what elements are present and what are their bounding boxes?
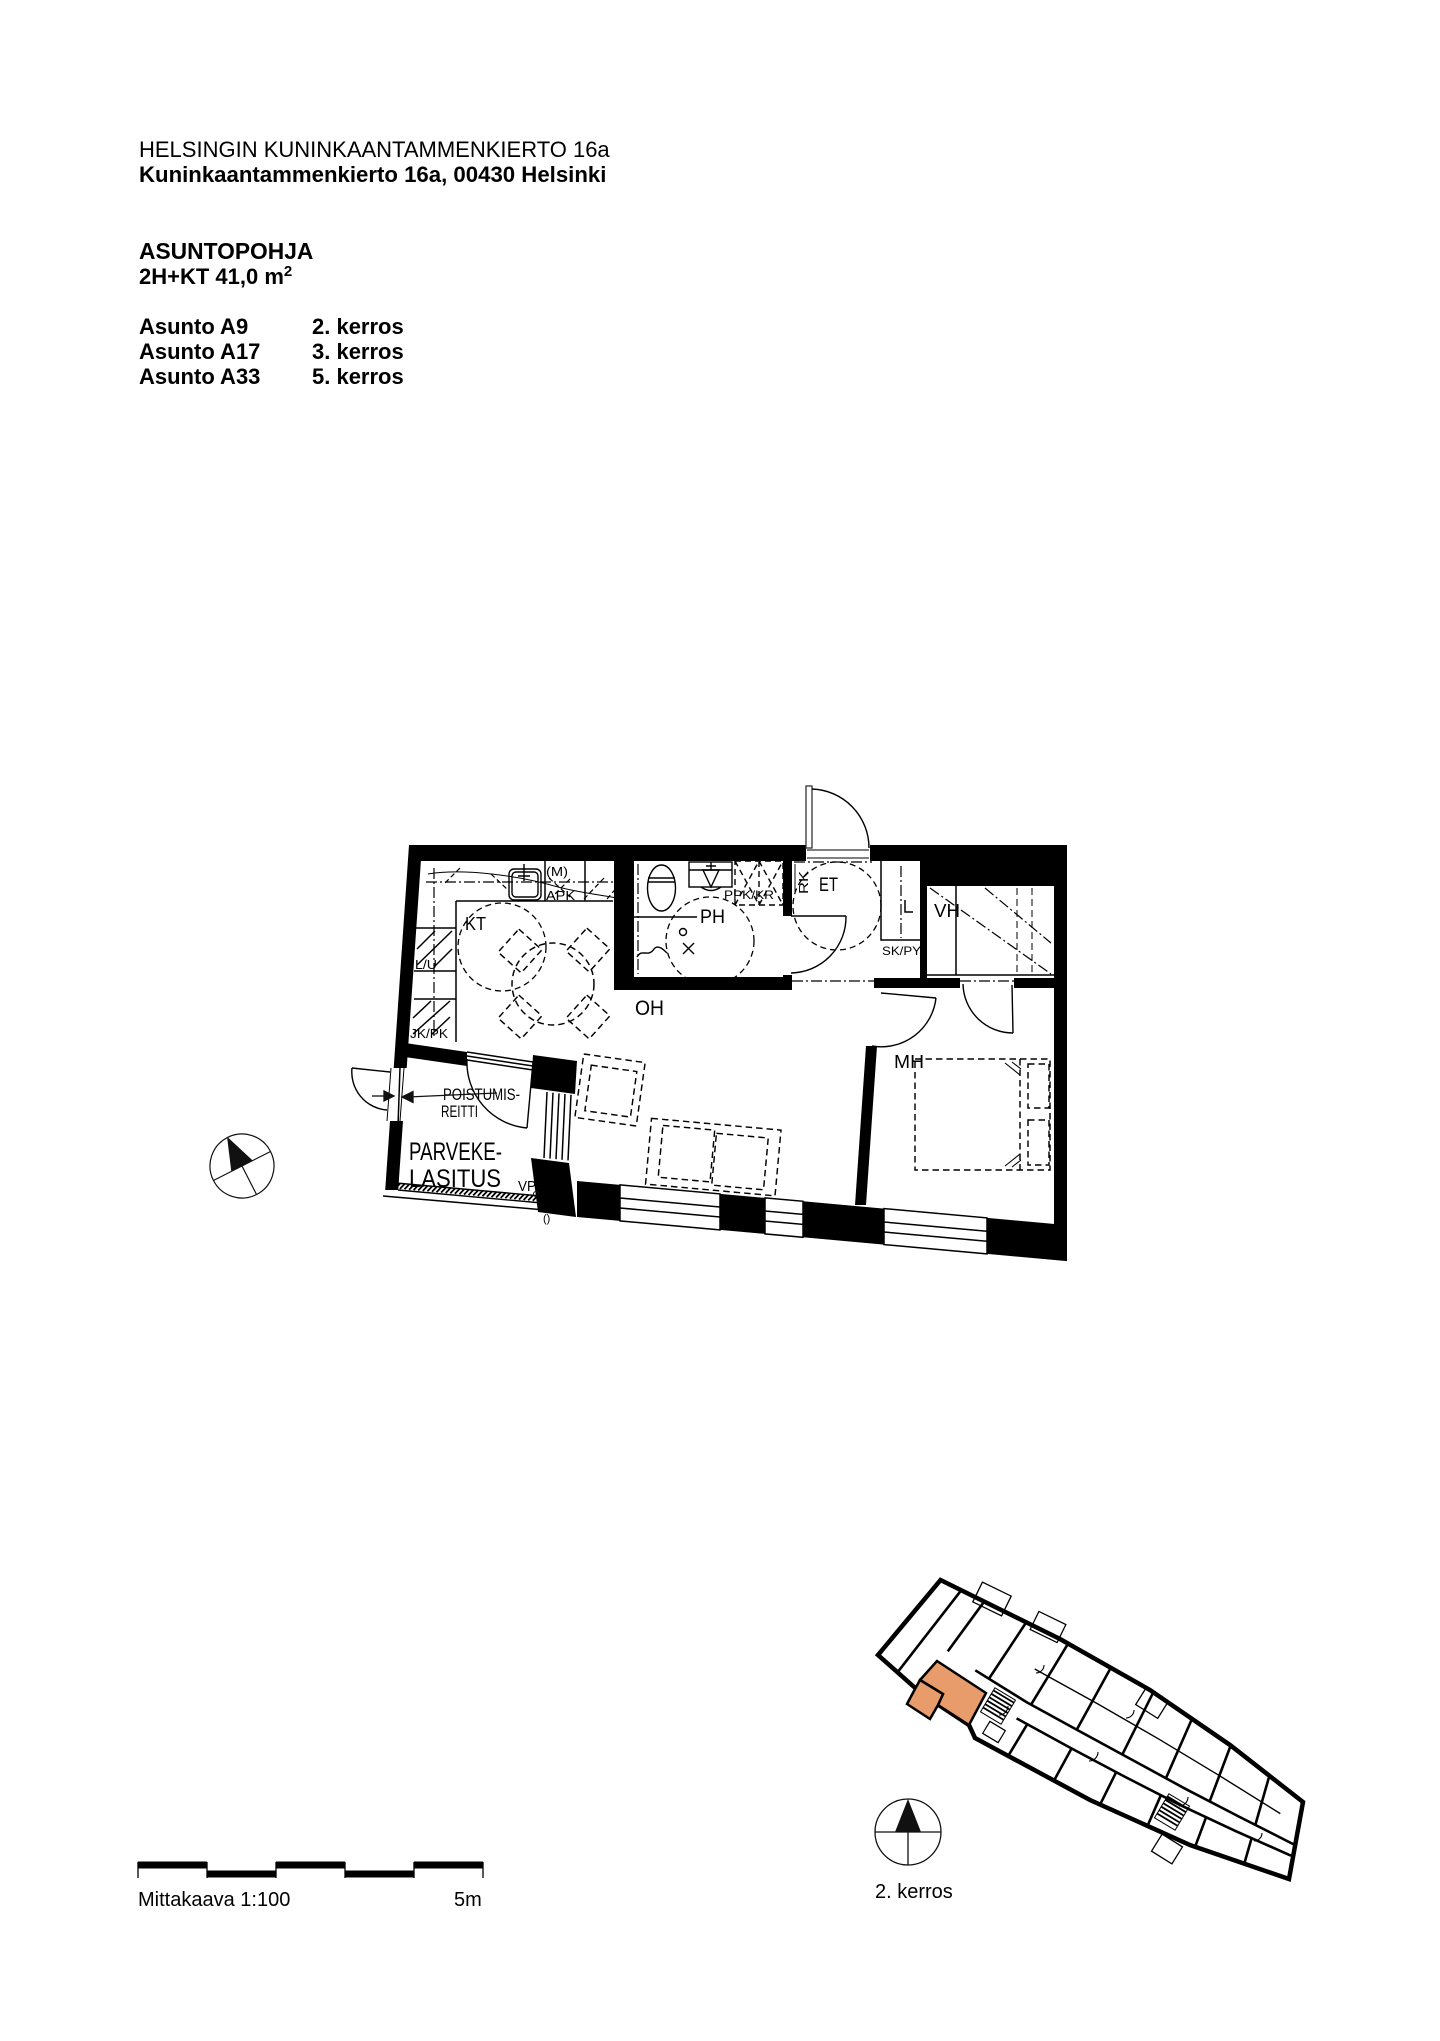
svg-text:(M): (M) (546, 865, 568, 879)
svg-text:LASITUS: LASITUS (409, 1165, 501, 1193)
svg-text:PARVEKE-: PARVEKE- (409, 1138, 502, 1166)
svg-text:5. kerros: 5. kerros (312, 364, 404, 389)
svg-text:PPK/KR: PPK/KR (724, 888, 774, 902)
svg-text:Asunto A33: Asunto A33 (139, 364, 260, 389)
svg-text:JK/PK: JK/PK (410, 1027, 449, 1041)
svg-text:OH: OH (635, 997, 664, 1020)
svg-text:2. kerros: 2. kerros (875, 1881, 953, 1903)
svg-text:ASUNTOPOHJA: ASUNTOPOHJA (139, 238, 313, 264)
svg-text:5m: 5m (454, 1889, 482, 1911)
svg-text:KT: KT (465, 914, 486, 934)
svg-text:L/U: L/U (415, 958, 437, 972)
svg-text:(): () (543, 1213, 550, 1225)
svg-text:3. kerros: 3. kerros (312, 339, 404, 364)
svg-text:Asunto A17: Asunto A17 (139, 339, 260, 364)
svg-text:SK/PY: SK/PY (882, 944, 921, 958)
svg-text:Kuninkaantammenkierto 16a, 004: Kuninkaantammenkierto 16a, 00430 Helsink… (139, 162, 606, 187)
svg-text:2H+KT 41,0 m2: 2H+KT 41,0 m2 (139, 263, 292, 289)
svg-text:REITTI: REITTI (441, 1103, 478, 1121)
svg-text:HELSINGIN KUNINKAANTAMMENKIERT: HELSINGIN KUNINKAANTAMMENKIERTO 16a (139, 137, 610, 162)
svg-text:2. kerros: 2. kerros (312, 314, 404, 339)
svg-text:Mittakaava 1:100: Mittakaava 1:100 (138, 1889, 290, 1911)
svg-text:APK: APK (546, 889, 576, 903)
svg-text:PH: PH (700, 907, 725, 928)
svg-text:VH: VH (934, 901, 960, 921)
svg-text:ET: ET (819, 875, 838, 896)
svg-text:VP: VP (518, 1178, 536, 1195)
svg-text:RK: RK (796, 871, 811, 894)
svg-text:Asunto A9: Asunto A9 (139, 314, 248, 339)
svg-text:MH: MH (894, 1052, 924, 1072)
